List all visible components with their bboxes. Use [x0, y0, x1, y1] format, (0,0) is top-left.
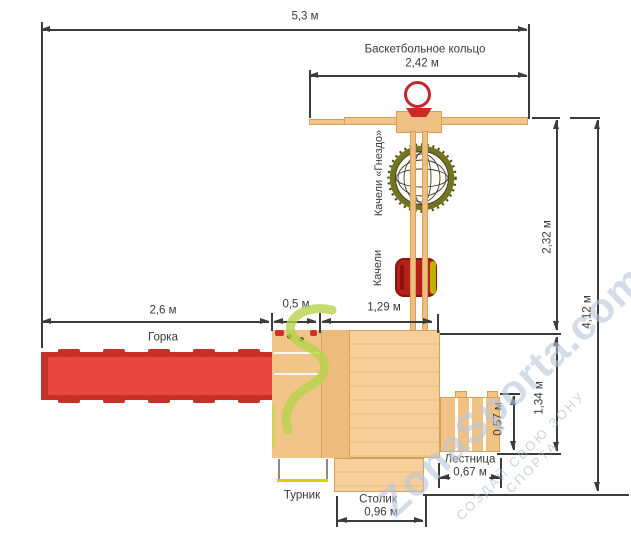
dim-0-67-label: 0,67 м [450, 467, 489, 480]
ground-baseline [423, 494, 629, 496]
arrowhead [309, 72, 318, 78]
slide-label: Горка [148, 332, 178, 345]
arrowhead [414, 517, 423, 523]
arrowhead [553, 321, 559, 330]
platform-red-fitting [310, 330, 317, 336]
arrowhead [510, 441, 516, 450]
slide-end-cap [41, 352, 48, 400]
swing-frame-rail-right [422, 131, 428, 332]
swing-frame-rail-left [410, 131, 416, 332]
ladder-gap [483, 398, 486, 451]
arrowhead [423, 318, 432, 324]
ext-line-left [41, 22, 43, 348]
arrowhead [42, 318, 51, 324]
swing-seat-grip [400, 265, 404, 290]
dim-2-32-label: 2,32 м [542, 220, 555, 253]
arrowhead [491, 474, 500, 480]
platform-mid-strip [322, 330, 350, 458]
ladder-gap [469, 398, 472, 451]
slide-support-tab [103, 399, 125, 403]
dim-1-34-line [556, 337, 558, 451]
slide-support-tab [238, 399, 260, 403]
platform-step-seam [274, 373, 320, 375]
dim-1-34-label: 1,34 м [534, 381, 547, 414]
ladder-label: Лестница [445, 454, 496, 467]
slide-support-tab [58, 349, 80, 353]
dim-total-width-line [41, 29, 527, 31]
dim-0-96-line [338, 520, 423, 522]
arrowhead [274, 318, 283, 324]
arrowhead [440, 474, 449, 480]
slide-support-tab [238, 349, 260, 353]
arrowhead [594, 120, 600, 129]
arrowhead [510, 396, 516, 405]
ext-line-platform-top [440, 333, 561, 335]
slide-support-tab [193, 399, 215, 403]
table-top [334, 458, 424, 492]
ext-tick [532, 117, 560, 119]
ladder-gap [455, 398, 458, 451]
platform-step-seam [274, 352, 320, 354]
slide-support-tab [148, 399, 170, 403]
small-platform-strip [272, 330, 322, 458]
pullup-bar [277, 479, 328, 482]
playground-plan-diagram: 5,3 м Баскетбольное кольцо 2,42 м 2,32 м… [0, 0, 631, 551]
ext-tick [570, 117, 600, 119]
arrowhead [553, 120, 559, 129]
pullup-bar-label: Турник [284, 490, 320, 503]
dim-0-5-label: 0,5 м [282, 299, 309, 312]
ext-tick [500, 458, 502, 488]
ext-tick [437, 314, 439, 333]
table-label: Столик [359, 494, 397, 507]
pullup-post [326, 459, 328, 480]
slide-support-tab [103, 349, 125, 353]
ext-tick [319, 313, 321, 333]
swing-seat-edge [430, 261, 436, 294]
dim-2-32-line [556, 120, 558, 330]
ext-tick [271, 313, 273, 331]
arrowhead [338, 517, 347, 523]
arrowhead [41, 26, 50, 32]
dim-0-57-label: 0,57 м [493, 402, 506, 435]
platform-bolt [299, 337, 304, 342]
dim-hoop-width-label: 2,42 м [405, 58, 438, 71]
dim-total-width-label: 5,3 м [291, 11, 318, 24]
dim-slide-label: 2,6 м [149, 305, 176, 318]
pullup-post [278, 459, 280, 480]
slide-support-tab [193, 349, 215, 353]
arrowhead [518, 26, 527, 32]
side-pole [272, 405, 275, 448]
arrowhead [322, 318, 331, 324]
ext-tick [425, 494, 427, 527]
dim-0-96-label: 0,96 м [364, 507, 397, 520]
arrowhead [594, 482, 600, 491]
ext-tick [500, 393, 520, 395]
ext-line-structure-bottom [497, 453, 561, 455]
platform-bolt [287, 334, 292, 339]
slide-support-tab [148, 349, 170, 353]
swing-beam-left-section [309, 119, 346, 125]
basketball-hoop-label: Баскетбольное кольцо [365, 44, 486, 57]
platform-red-fitting [275, 330, 284, 336]
dim-hoop-width-line [309, 75, 527, 77]
basketball-ring-icon [404, 81, 431, 108]
dim-4-12-line [597, 120, 599, 491]
slide-body [41, 352, 278, 400]
dim-1-29-label: 1,29 м [367, 302, 400, 315]
arrowhead [307, 318, 316, 324]
swing-label: Качели [372, 250, 384, 286]
arrowhead [553, 337, 559, 346]
ext-line-beam-right [528, 24, 530, 119]
slide-support-tab [58, 399, 80, 403]
arrowhead [260, 318, 269, 324]
arrowhead [518, 72, 527, 78]
dim-slide-line [42, 321, 269, 323]
dim-4-12-label: 4,12 м [582, 295, 595, 328]
nest-swing-label: Качели «Гнездо» [373, 130, 385, 216]
arrowhead [553, 442, 559, 451]
dim-1-29-line [322, 321, 432, 323]
